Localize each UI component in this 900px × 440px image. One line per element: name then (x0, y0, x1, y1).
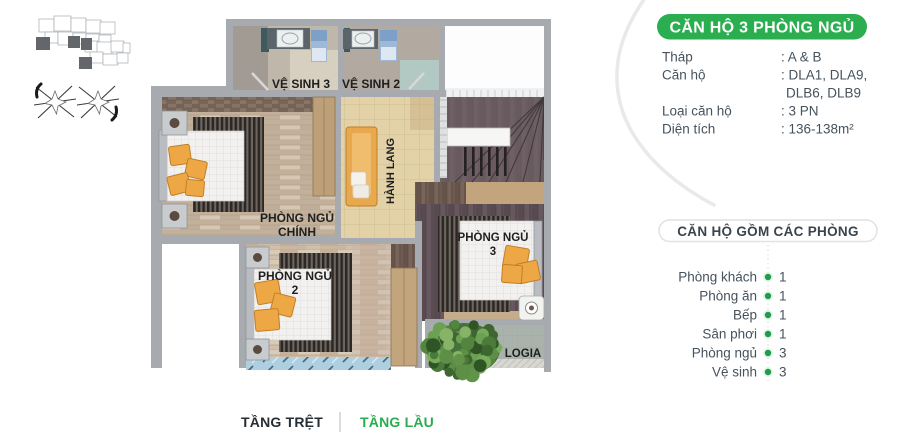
svg-text:Diện tích: Diện tích (662, 122, 715, 137)
svg-text:CHÍNH: CHÍNH (278, 224, 316, 239)
svg-text:VỆ SINH 3: VỆ SINH 3 (272, 76, 330, 91)
svg-text:Sân phơi: Sân phơi (702, 327, 757, 342)
svg-text:: DLA1, DLA9,: : DLA1, DLA9, (781, 68, 867, 83)
svg-text:1: 1 (779, 270, 787, 285)
svg-text:2: 2 (292, 283, 299, 297)
svg-text:TẦNG TRỆT: TẦNG TRỆT (241, 413, 323, 430)
svg-text:TẦNG LẦU: TẦNG LẦU (360, 414, 434, 430)
svg-text:Vệ sinh: Vệ sinh (712, 365, 757, 380)
svg-text:Bếp: Bếp (733, 308, 757, 323)
svg-text:Căn hộ: Căn hộ (662, 68, 706, 83)
svg-text:PHÒNG NGỦ: PHÒNG NGỦ (260, 210, 334, 225)
svg-text:VỆ SINH 2: VỆ SINH 2 (342, 76, 400, 91)
svg-text:Phòng ăn: Phòng ăn (699, 289, 757, 304)
svg-text:Loại căn hộ: Loại căn hộ (662, 104, 732, 119)
svg-text:CĂN HỘ GỒM CÁC PHÒNG: CĂN HỘ GỒM CÁC PHÒNG (677, 224, 859, 239)
svg-text:3: 3 (490, 246, 496, 258)
svg-text:: A & B: : A & B (781, 50, 822, 65)
svg-text:Phòng khách: Phòng khách (678, 270, 757, 285)
svg-text:LOGIA: LOGIA (505, 348, 541, 360)
svg-text:Phòng ngủ: Phòng ngủ (692, 346, 757, 361)
svg-text:HÀNH LANG: HÀNH LANG (384, 138, 397, 204)
svg-text:3: 3 (779, 365, 787, 380)
svg-text:: 136-138m²: : 136-138m² (781, 122, 854, 137)
svg-text:CĂN HỘ 3 PHÒNG NGỦ: CĂN HỘ 3 PHÒNG NGỦ (670, 18, 855, 37)
svg-text:1: 1 (779, 289, 787, 304)
svg-text:Tháp: Tháp (662, 50, 693, 65)
svg-text:PHÒNG NGỦ: PHÒNG NGỦ (258, 268, 332, 283)
svg-text:: 3 PN: : 3 PN (781, 104, 819, 119)
svg-text:1: 1 (779, 327, 787, 342)
svg-text:PHÒNG NGỦ: PHÒNG NGỦ (458, 231, 529, 244)
svg-text:1: 1 (779, 308, 787, 323)
svg-text:DLB6, DLB9: DLB6, DLB9 (786, 86, 861, 101)
svg-text:3: 3 (779, 346, 787, 361)
